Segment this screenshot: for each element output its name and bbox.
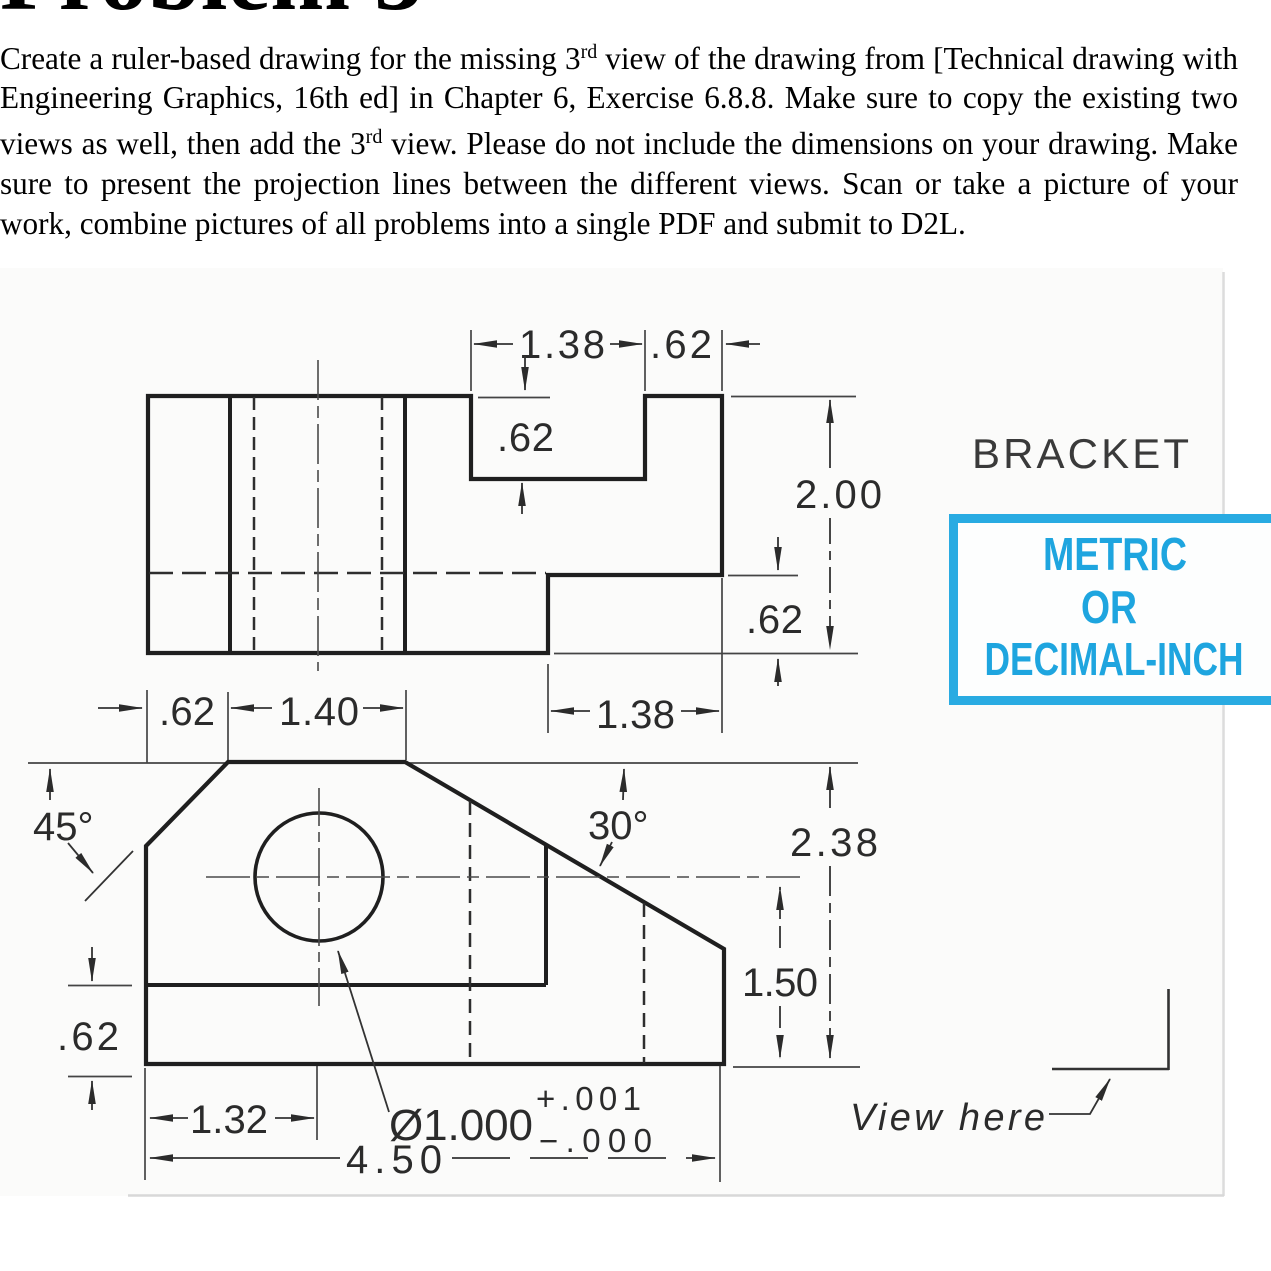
svg-text:−.000: −.000 bbox=[539, 1122, 652, 1159]
svg-text:45°: 45° bbox=[33, 805, 94, 849]
svg-text:Ø1.000: Ø1.000 bbox=[389, 1101, 533, 1150]
svg-text:30°: 30° bbox=[588, 804, 649, 848]
svg-text:.62: .62 bbox=[57, 1015, 119, 1059]
svg-text:METRIC: METRIC bbox=[1043, 528, 1187, 580]
svg-text:.62: .62 bbox=[650, 323, 712, 367]
svg-text:BRACKET: BRACKET bbox=[972, 430, 1189, 477]
svg-text:1.40: 1.40 bbox=[279, 690, 359, 734]
svg-text:+.001: +.001 bbox=[536, 1080, 641, 1117]
svg-text:1.32: 1.32 bbox=[190, 1098, 268, 1142]
svg-text:.62: .62 bbox=[159, 690, 215, 734]
svg-text:1.50: 1.50 bbox=[742, 961, 818, 1005]
svg-text:1.38: 1.38 bbox=[596, 693, 675, 737]
svg-text:2.00: 2.00 bbox=[795, 473, 882, 517]
svg-text:.62: .62 bbox=[746, 598, 803, 642]
svg-text:View here: View here bbox=[850, 1097, 1047, 1139]
svg-text:1.38: 1.38 bbox=[519, 323, 605, 367]
svg-text:2.38: 2.38 bbox=[790, 821, 878, 865]
svg-text:OR: OR bbox=[1081, 581, 1137, 633]
svg-text:DECIMAL-INCH: DECIMAL-INCH bbox=[985, 633, 1244, 685]
svg-text:.62: .62 bbox=[497, 416, 554, 460]
